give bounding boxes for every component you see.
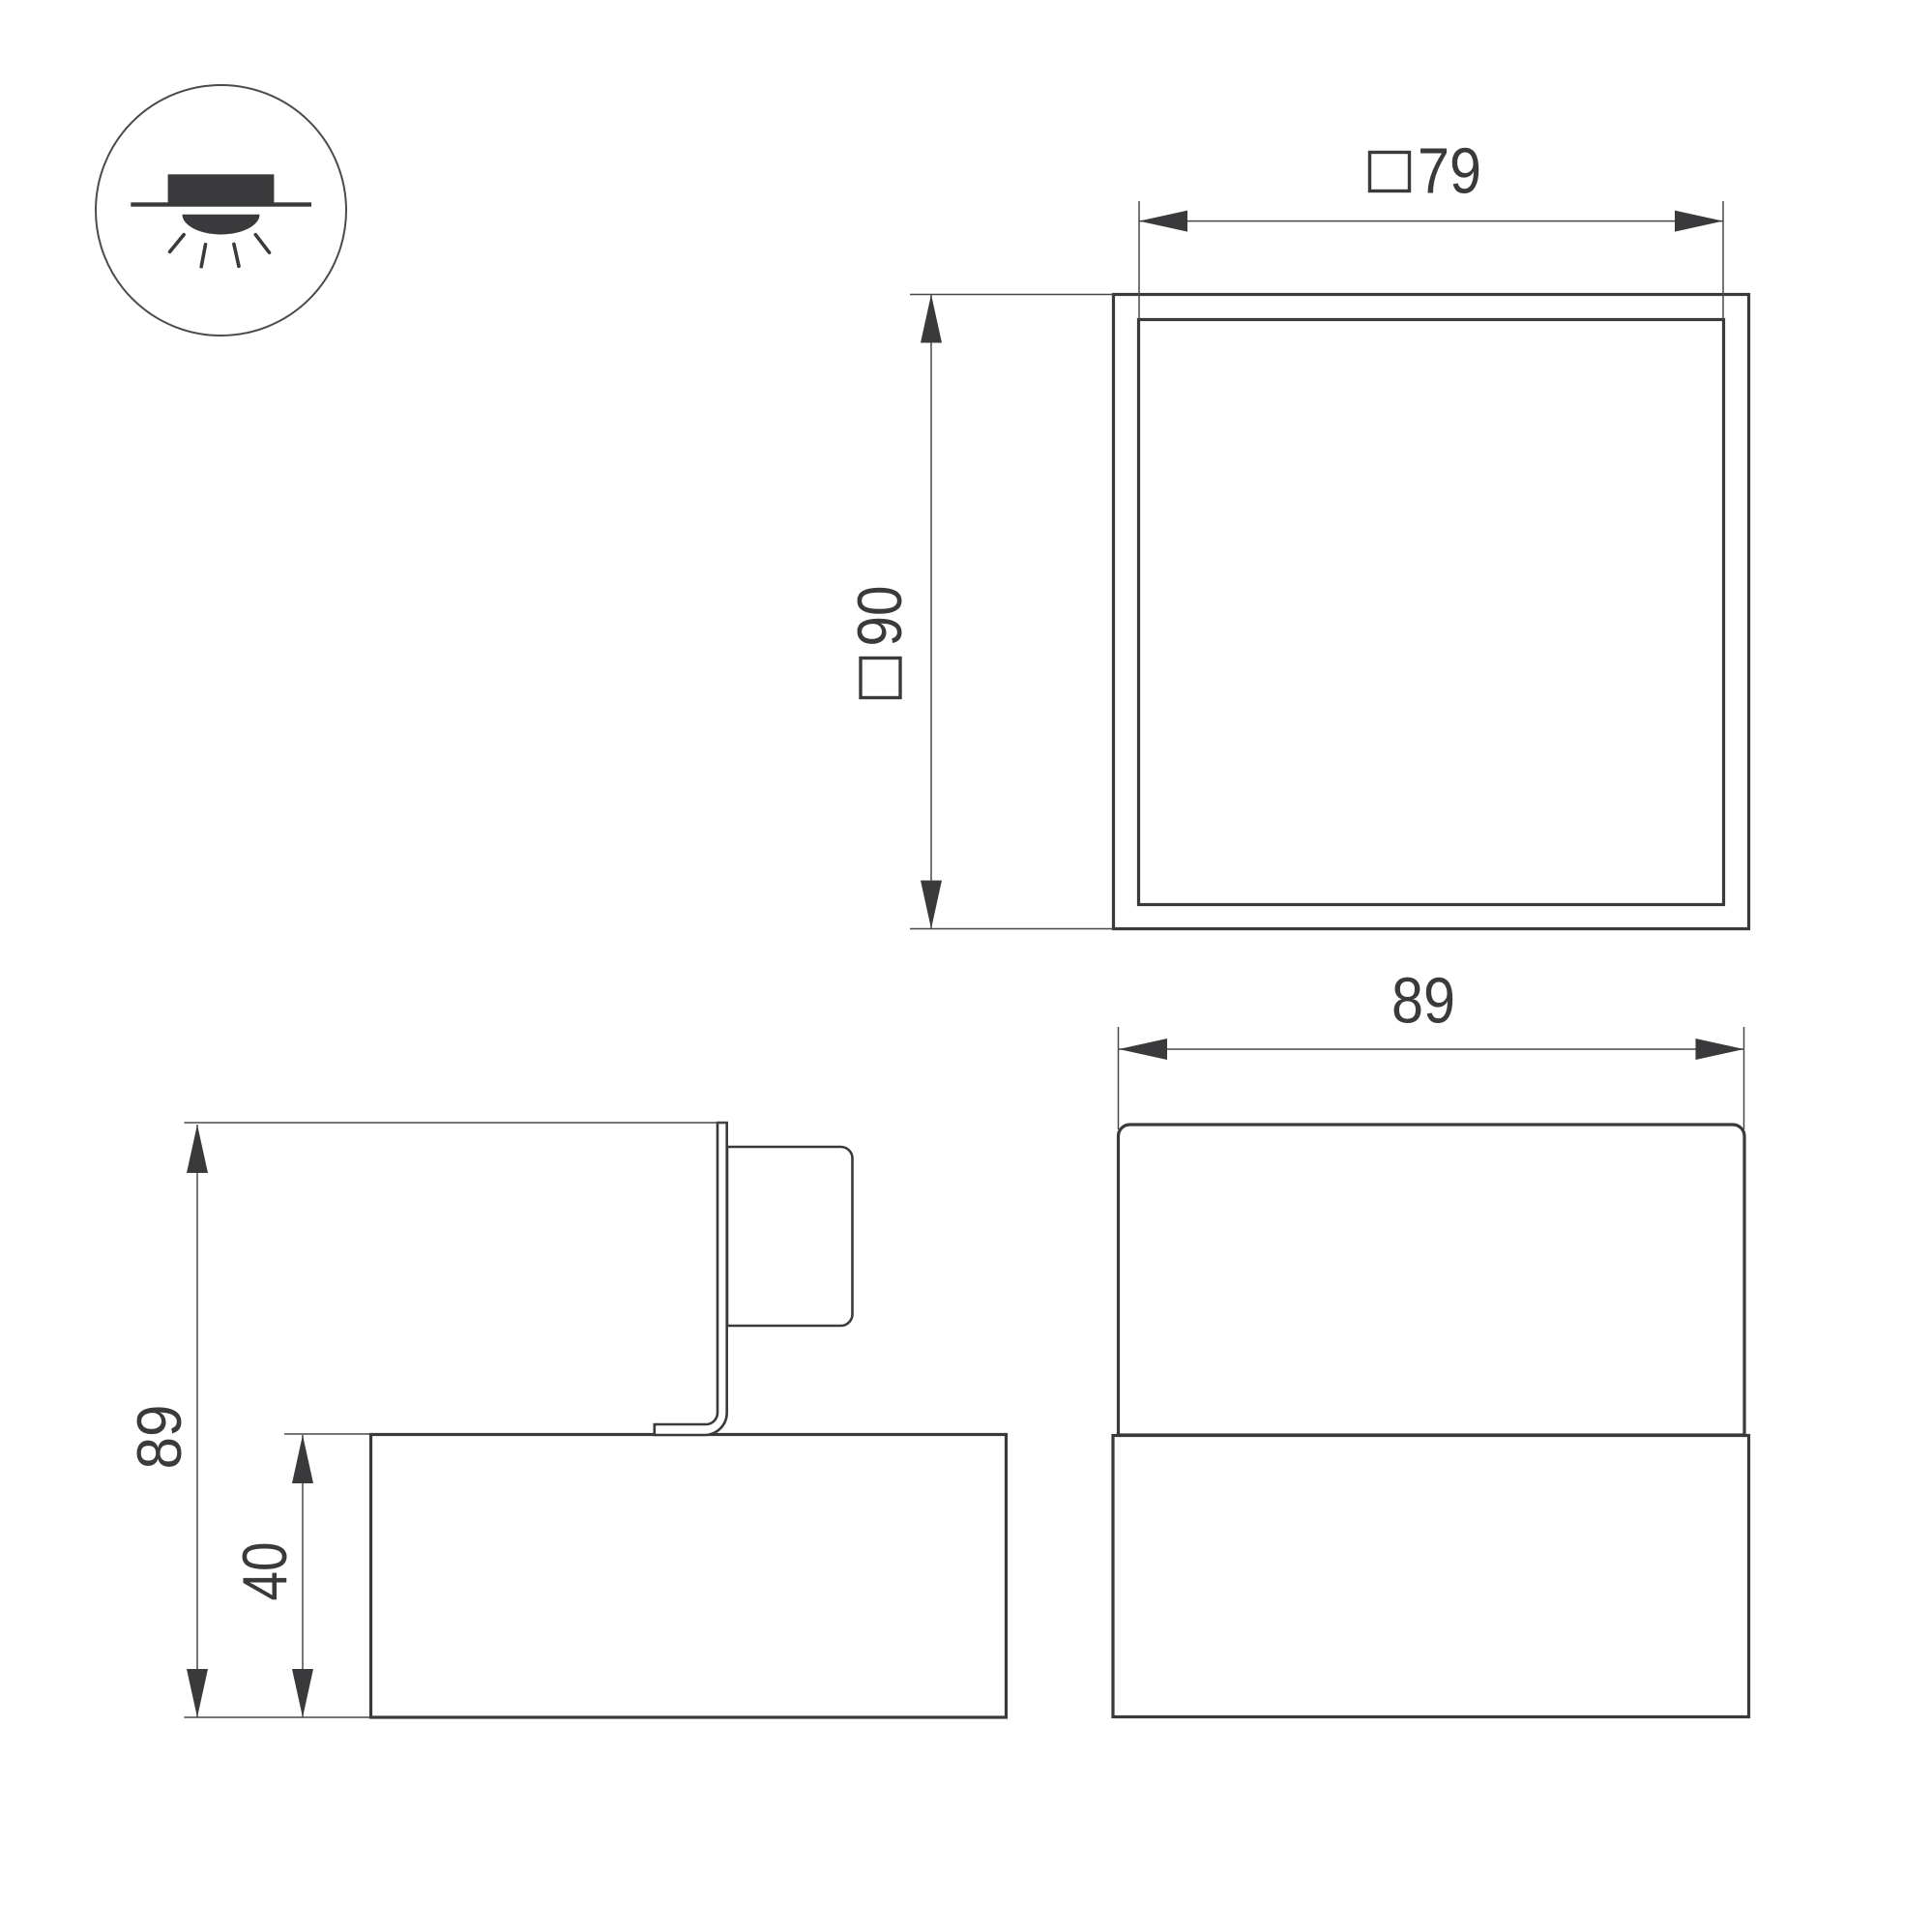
svg-text:79: 79 (1418, 135, 1481, 208)
svg-text:90: 90 (844, 586, 915, 647)
svg-text:89: 89 (1391, 965, 1455, 1038)
svg-text:89: 89 (124, 1405, 194, 1470)
svg-text:40: 40 (229, 1542, 300, 1601)
